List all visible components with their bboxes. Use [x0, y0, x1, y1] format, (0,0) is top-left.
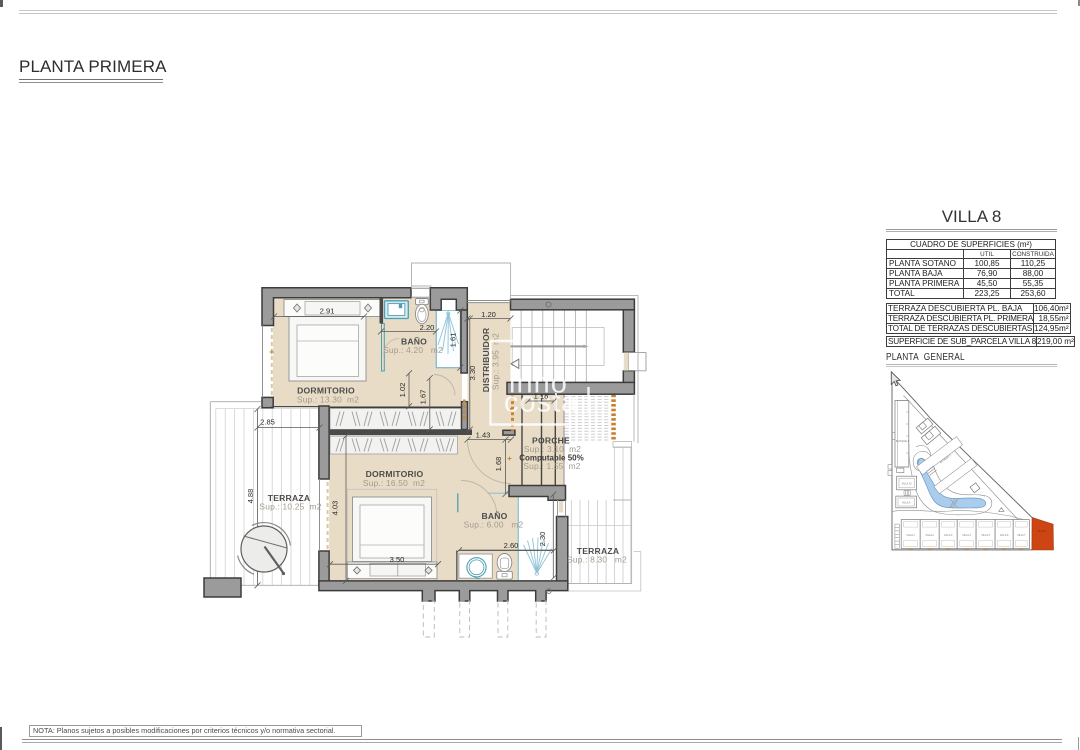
svg-text:VILLA 4: VILLA 4 [962, 534, 971, 537]
svg-text:1.61: 1.61 [449, 333, 458, 348]
svg-text:3.50: 3.50 [390, 555, 405, 564]
svg-text:VILLA 2: VILLA 2 [926, 534, 935, 537]
svg-text:VILLA 9: VILLA 9 [902, 502, 911, 505]
svg-text:VILLA 5: VILLA 5 [981, 534, 990, 537]
svg-text:3.30: 3.30 [468, 366, 477, 381]
svg-text:4.88: 4.88 [246, 489, 255, 504]
svg-text:2.60: 2.60 [504, 541, 519, 550]
svg-text:2.85: 2.85 [260, 418, 275, 427]
svg-text:VILLA 10: VILLA 10 [902, 483, 912, 486]
svg-text:VILLA 8: VILLA 8 [1037, 530, 1046, 533]
svg-text:Sup.: 6.00 m2: Sup.: 6.00 m2 [464, 520, 524, 530]
svg-text:Sup.: 10.25 m2: Sup.: 10.25 m2 [259, 502, 321, 512]
svg-text:1.68: 1.68 [494, 457, 503, 472]
svg-text:VILLA 3: VILLA 3 [944, 534, 953, 537]
svg-text:VILLA 6: VILLA 6 [1000, 534, 1009, 537]
svg-text:1.02: 1.02 [398, 383, 407, 398]
svg-text:4.03: 4.03 [331, 501, 340, 516]
svg-text:VILLA 1: VILLA 1 [907, 534, 916, 537]
svg-text:2.91: 2.91 [320, 306, 335, 315]
svg-text:1.18: 1.18 [534, 392, 549, 401]
svg-text:Sup.: 13.30 m2: Sup.: 13.30 m2 [297, 395, 359, 405]
svg-text:BLOQUE 1: BLOQUE 1 [896, 439, 910, 443]
svg-text:2.30: 2.30 [538, 532, 547, 547]
svg-text:Sup.: 1.55 m2: Sup.: 1.55 m2 [523, 461, 580, 471]
svg-text:1.43: 1.43 [476, 431, 491, 440]
svg-text:Sup.: 4.20 m2: Sup.: 4.20 m2 [383, 345, 443, 355]
svg-text:Sup.: 16.50 m2: Sup.: 16.50 m2 [363, 478, 425, 488]
svg-text:Sup.: 8.30 m2: Sup.: 8.30 m2 [567, 555, 627, 565]
svg-text:VILLA 7: VILLA 7 [1017, 534, 1026, 537]
svg-text:1.20: 1.20 [481, 310, 496, 319]
svg-text:1.67: 1.67 [419, 390, 428, 405]
svg-text:2.20: 2.20 [420, 323, 435, 332]
